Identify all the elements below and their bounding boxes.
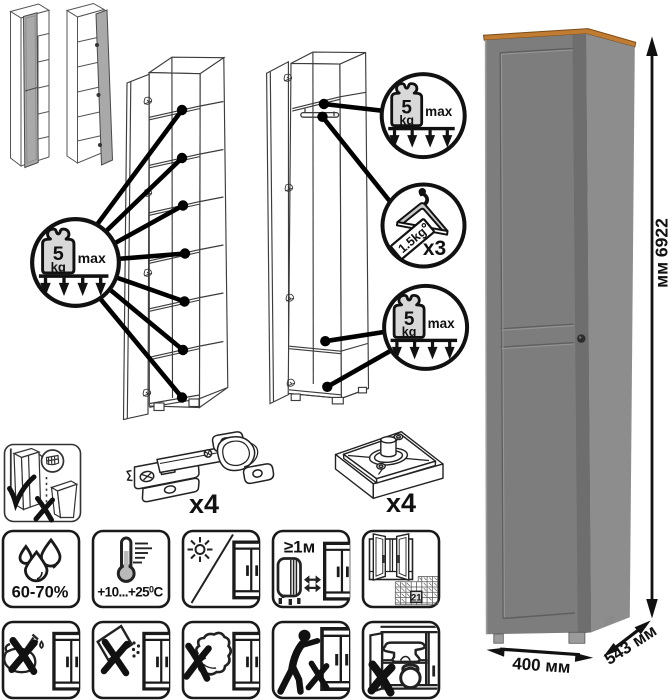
svg-text:543 мм: 543 мм	[601, 621, 660, 669]
svg-text:мм 6922: мм 6922	[652, 218, 672, 288]
svg-text:x3: x3	[423, 237, 446, 260]
svg-text:x4: x4	[386, 488, 416, 518]
svg-text:400 мм: 400 мм	[512, 654, 571, 677]
svg-text:x4: x4	[189, 489, 219, 519]
svg-text:≥1м: ≥1м	[284, 538, 315, 557]
svg-text:21: 21	[411, 592, 422, 603]
svg-text:+10...+250C: +10...+250C	[97, 585, 163, 600]
svg-text:60-70%: 60-70%	[12, 584, 69, 602]
